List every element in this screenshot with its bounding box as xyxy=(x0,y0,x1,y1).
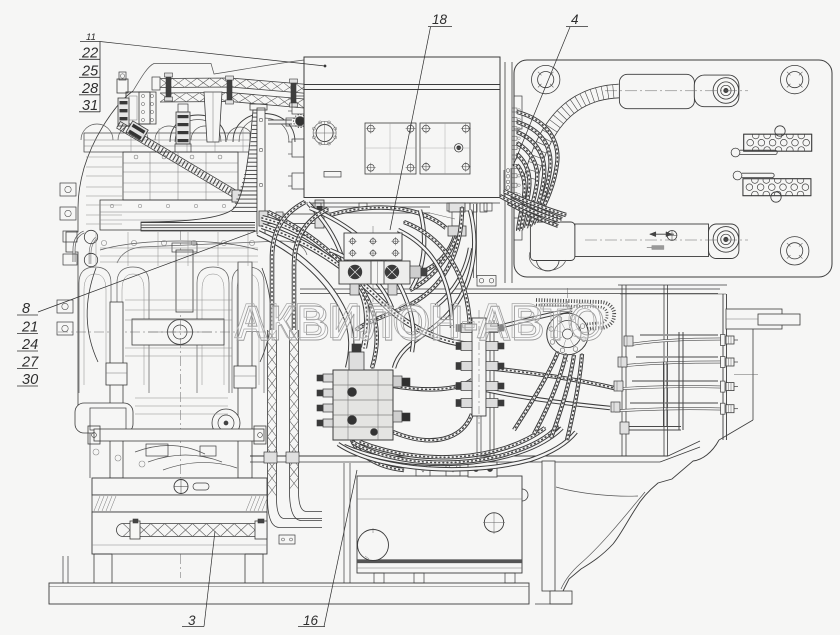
svg-text:18: 18 xyxy=(432,12,448,27)
svg-text:АКВИЛОН-АВТО: АКВИЛОН-АВТО xyxy=(234,295,603,349)
svg-text:4: 4 xyxy=(571,12,579,27)
svg-text:16: 16 xyxy=(303,613,319,628)
svg-text:3: 3 xyxy=(188,613,196,628)
